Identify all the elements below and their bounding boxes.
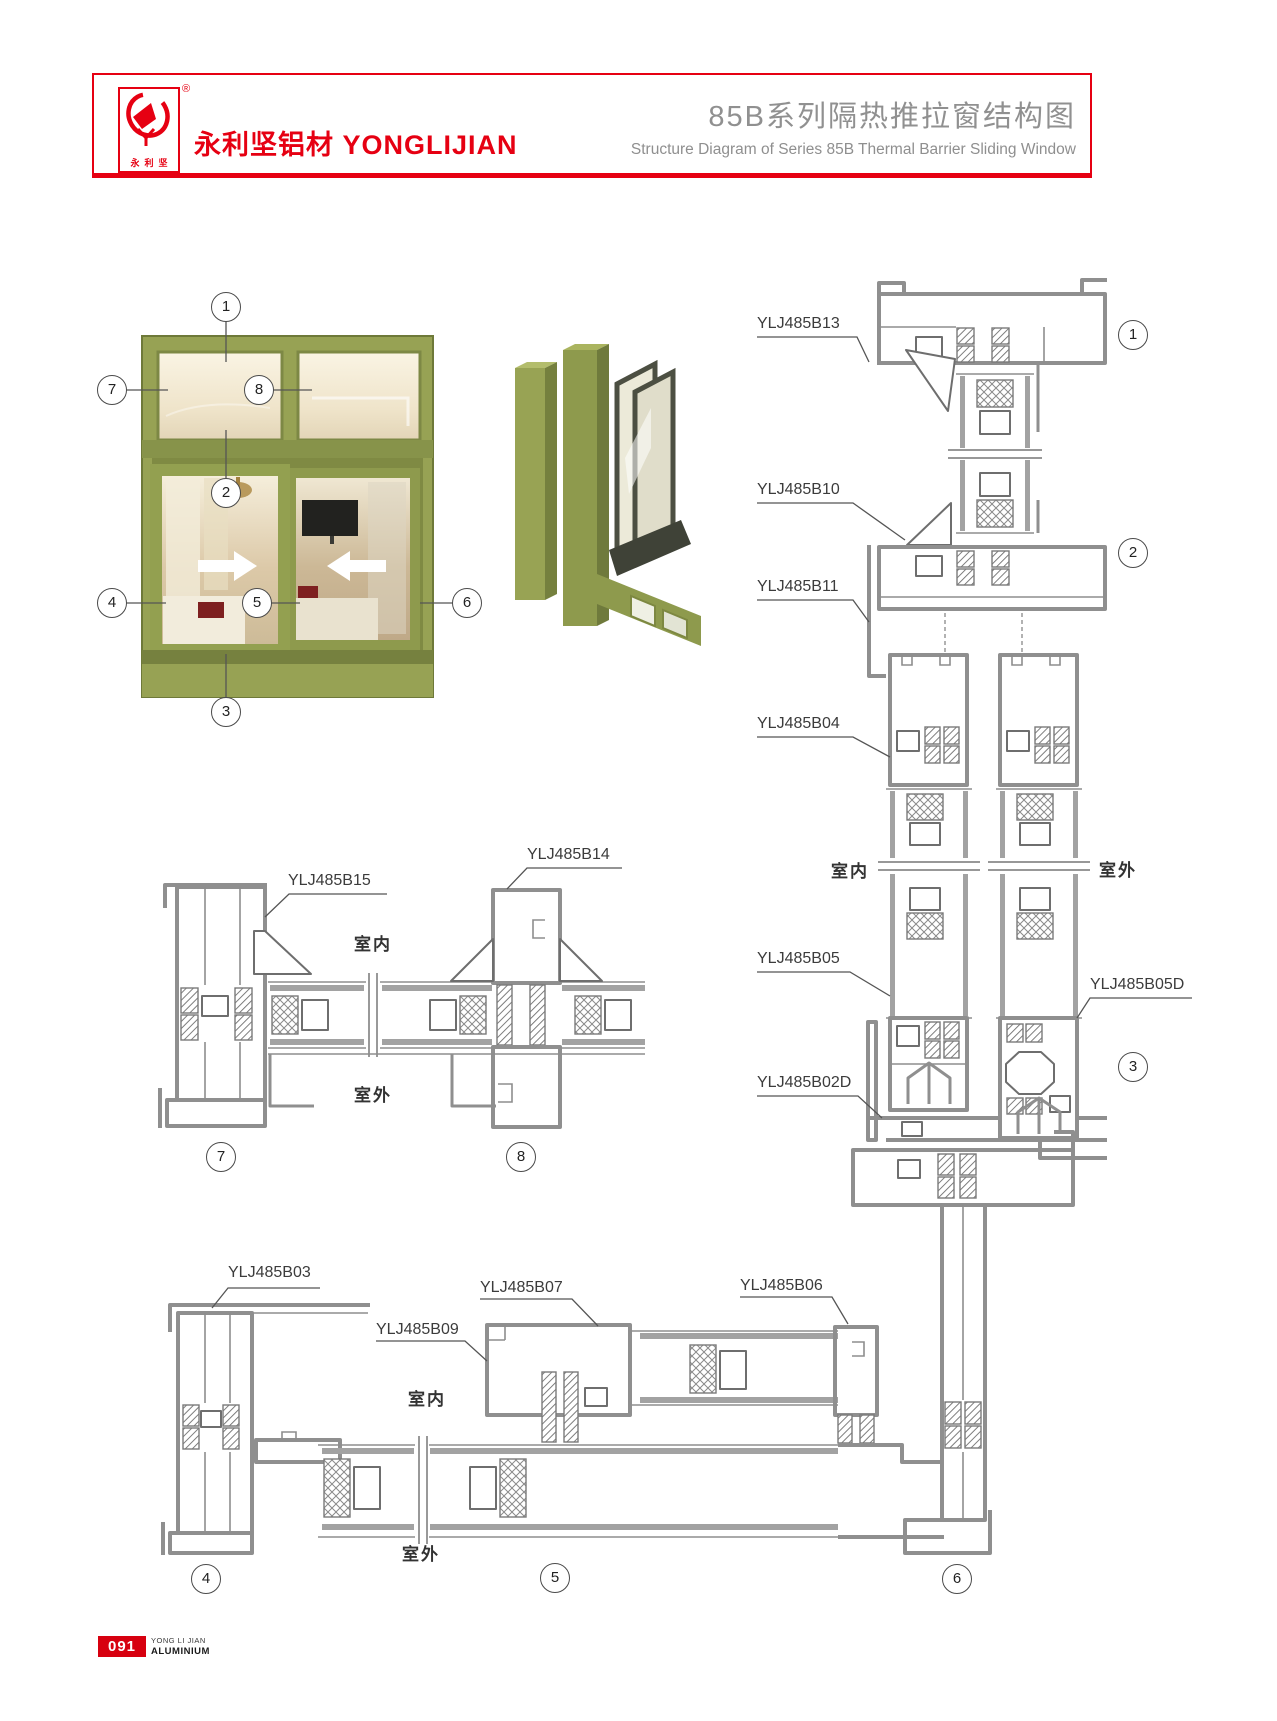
section-callout-6: 6	[942, 1564, 972, 1594]
photo-callout-7: 7	[97, 375, 127, 405]
profile-label-b02d: YLJ485B02D	[757, 1074, 851, 1092]
photo-callout-5: 5	[242, 588, 272, 618]
header: 永利坚 ® 永利坚铝材 YONGLIJIAN 85B系列隔热推拉窗结构图 Str…	[92, 73, 1092, 178]
section-callout-8: 8	[506, 1142, 536, 1172]
horizontal-section-top-drawing	[160, 868, 645, 1127]
profile-label-b14: YLJ485B14	[527, 846, 610, 864]
outdoor-label-vertical: 室外	[1099, 856, 1137, 881]
profile-label-b06: YLJ485B06	[740, 1277, 823, 1295]
profile-label-b07: YLJ485B07	[480, 1279, 563, 1297]
indoor-label-vertical: 室内	[831, 857, 869, 882]
photo-callout-6: 6	[452, 588, 482, 618]
catalog-page: 永利坚 ® 永利坚铝材 YONGLIJIAN 85B系列隔热推拉窗结构图 Str…	[0, 0, 1277, 1721]
profile-label-b03: YLJ485B03	[228, 1264, 311, 1282]
profile-label-b10: YLJ485B10	[757, 481, 840, 499]
profile-render-3d	[515, 344, 701, 646]
logo-characters: 永利坚	[120, 156, 178, 169]
photo-callout-3: 3	[211, 697, 241, 727]
page-title: 85B系列隔热推拉窗结构图	[631, 93, 1076, 135]
profile-label-b05d: YLJ485B05D	[1090, 976, 1184, 994]
profile-label-b13: YLJ485B13	[757, 315, 840, 333]
section-callout-4: 4	[191, 1564, 221, 1594]
section-callout-5: 5	[540, 1563, 570, 1593]
photo-callout-2: 2	[211, 478, 241, 508]
section-callout-3: 3	[1118, 1052, 1148, 1082]
photo-callout-1: 1	[211, 292, 241, 322]
outdoor-label-bottom: 室外	[402, 1540, 440, 1565]
indoor-label-mid: 室内	[354, 930, 392, 955]
photo-callout-8: 8	[244, 375, 274, 405]
photo-callout-4: 4	[97, 588, 127, 618]
logo-bird-icon	[120, 89, 174, 149]
page-number-badge: 091	[98, 1636, 146, 1657]
page-artwork	[0, 0, 1277, 1721]
profile-label-b15: YLJ485B15	[288, 872, 371, 890]
profile-label-b04: YLJ485B04	[757, 715, 840, 733]
brand-name-cn: 永利坚铝材	[194, 130, 334, 160]
registered-mark: ®	[182, 83, 190, 95]
profile-label-b11: YLJ485B11	[757, 578, 839, 596]
profile-label-b09: YLJ485B09	[376, 1321, 459, 1339]
section-callout-2: 2	[1118, 538, 1148, 568]
profile-label-b05: YLJ485B05	[757, 950, 840, 968]
indoor-label-bottom: 室内	[408, 1385, 446, 1410]
footer-brand-line1: YONG LI JIAN	[151, 1636, 206, 1645]
brand-name-en: YONGLIJIAN	[343, 130, 518, 160]
footer-brand-line2: ALUMINIUM	[151, 1646, 210, 1657]
page-subtitle: Structure Diagram of Series 85B Thermal …	[631, 141, 1076, 159]
section-callout-1: 1	[1118, 320, 1148, 350]
brand-name: 永利坚铝材 YONGLIJIAN	[194, 123, 518, 162]
section-callout-7: 7	[206, 1142, 236, 1172]
brand-logo: 永利坚	[118, 87, 180, 173]
outdoor-label-mid: 室外	[354, 1081, 392, 1106]
page-titles: 85B系列隔热推拉窗结构图 Structure Diagram of Serie…	[631, 93, 1076, 159]
horizontal-section-bottom-drawing	[163, 1132, 1073, 1553]
